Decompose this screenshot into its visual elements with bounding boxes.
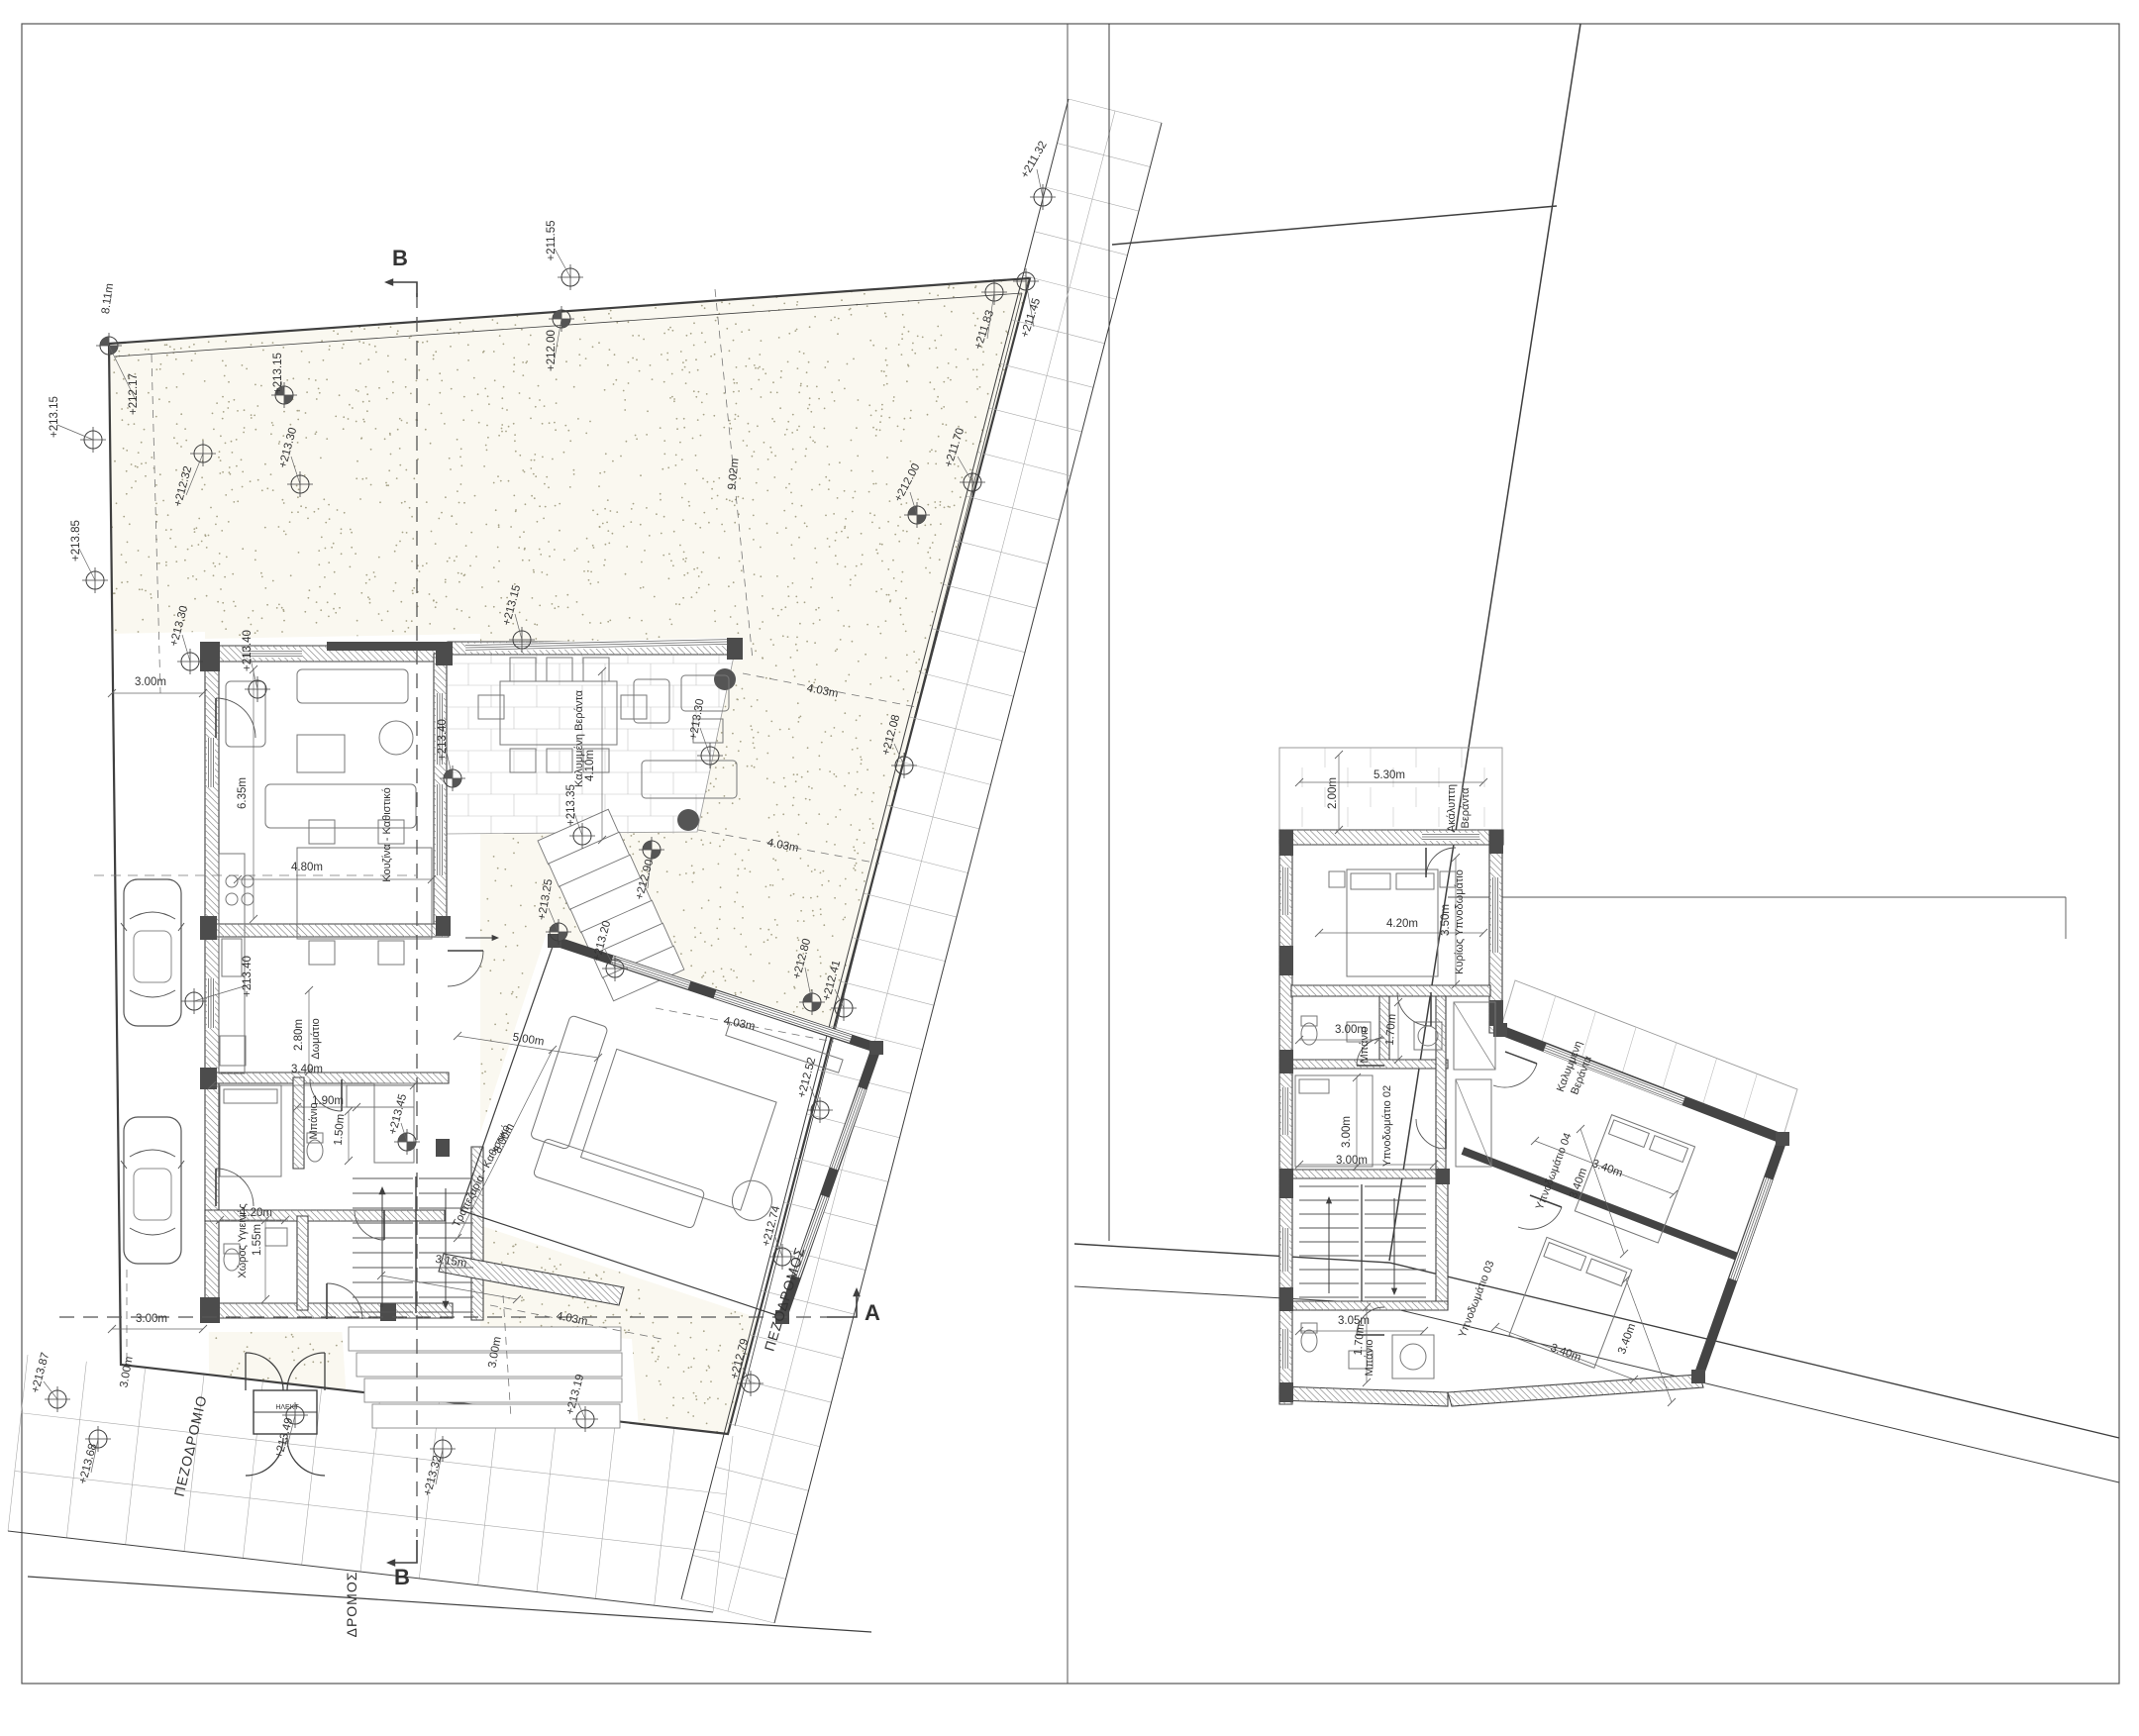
stipple-dot <box>844 388 846 390</box>
stipple-dot <box>537 1246 539 1248</box>
stipple-dot <box>788 971 790 973</box>
stipple-dot <box>790 492 792 494</box>
plan-line <box>8 1531 713 1612</box>
stipple-dot <box>683 427 685 429</box>
stipple-dot <box>520 905 522 907</box>
stipple-dot <box>639 370 641 372</box>
stipple-dot <box>169 346 171 348</box>
stipple-dot <box>697 419 699 421</box>
stipple-dot <box>864 293 866 295</box>
stipple-dot <box>695 523 697 525</box>
stipple-dot <box>958 465 960 467</box>
stipple-dot <box>359 498 361 500</box>
stipple-dot <box>206 547 208 549</box>
stipple-dot <box>716 928 718 930</box>
stipple-dot <box>510 526 512 528</box>
stipple-dot <box>506 409 508 411</box>
stipple-dot <box>798 537 800 539</box>
stipple-dot <box>852 511 854 513</box>
stipple-dot <box>544 483 546 485</box>
stipple-dot <box>222 621 224 623</box>
stipple-dot <box>499 612 501 614</box>
stipple-dot <box>225 443 227 445</box>
stipple-dot <box>244 427 246 429</box>
wall <box>1279 1386 1448 1406</box>
stipple-dot <box>775 937 777 939</box>
stipple-dot <box>819 956 821 958</box>
stipple-dot <box>501 424 503 426</box>
stipple-dot <box>607 364 609 366</box>
room-label: Υπνοδωμάτιο 02 <box>1381 1085 1393 1167</box>
stipple-dot <box>583 317 585 319</box>
stipple-dot <box>795 516 797 518</box>
stipple-dot <box>687 1411 689 1413</box>
stipple-dot <box>643 339 645 341</box>
stipple-dot <box>902 571 904 573</box>
furniture <box>124 879 181 1026</box>
stipple-dot <box>772 608 774 610</box>
stipple-dot <box>723 766 725 768</box>
stipple-dot <box>559 503 560 505</box>
stipple-dot <box>397 330 399 332</box>
stipple-dot <box>318 563 320 565</box>
stipple-dot <box>658 1356 660 1358</box>
stipple-dot <box>344 512 346 514</box>
stipple-dot <box>413 477 415 479</box>
stipple-dot <box>925 637 927 639</box>
arrow-head <box>384 278 393 286</box>
stipple-dot <box>851 469 853 471</box>
stipple-dot <box>721 732 723 734</box>
stipple-dot <box>460 483 462 485</box>
stipple-dot <box>759 366 761 368</box>
stipple-dot <box>522 560 524 562</box>
stipple-dot <box>405 469 407 471</box>
stipple-dot <box>848 674 850 676</box>
room-label: Υπνοδωμάτιο 03 <box>1457 1259 1497 1339</box>
stipple-dot <box>660 493 662 495</box>
stipple-dot <box>508 480 510 482</box>
stipple-dot <box>718 1350 720 1352</box>
stipple-dot <box>544 405 546 407</box>
stipple-dot <box>855 869 857 871</box>
stipple-dot <box>735 992 737 994</box>
stipple-dot <box>607 530 609 532</box>
stipple-dot <box>805 448 807 450</box>
stipple-dot <box>741 1315 743 1317</box>
stipple-dot <box>620 456 622 458</box>
stipple-dot <box>162 500 164 502</box>
stipple-dot <box>281 631 283 633</box>
stipple-dot <box>454 628 456 630</box>
stipple-dot <box>675 464 677 466</box>
stipple-dot <box>927 414 929 416</box>
stipple-dot <box>723 427 725 429</box>
stipple-dot <box>422 565 424 567</box>
stipple-dot <box>966 440 968 442</box>
stipple-dot <box>139 588 141 590</box>
stipple-dot <box>605 1320 607 1322</box>
stipple-dot <box>219 563 221 565</box>
stipple-dot <box>224 375 226 377</box>
stipple-dot <box>325 522 327 524</box>
stipple-dot <box>297 442 299 444</box>
stipple-dot <box>979 386 981 388</box>
stipple-dot <box>158 562 160 564</box>
stipple-dot <box>892 560 894 562</box>
stipple-dot <box>956 366 958 368</box>
stipple-dot <box>956 546 958 548</box>
stipple-dot <box>529 560 531 562</box>
stipple-dot <box>676 428 678 430</box>
stipple-dot <box>946 424 948 426</box>
stipple-dot <box>932 611 934 613</box>
stipple-dot <box>328 562 330 563</box>
stipple-dot <box>685 841 687 843</box>
stipple-dot <box>725 979 727 981</box>
stipple-dot <box>328 504 330 506</box>
stipple-dot <box>145 462 147 464</box>
stipple-dot <box>721 301 723 303</box>
stipple-dot <box>641 562 643 563</box>
stipple-dot <box>685 558 687 560</box>
stipple-dot <box>278 441 280 443</box>
stipple-dot <box>251 624 253 626</box>
stipple-dot <box>518 986 520 988</box>
stipple-dot <box>528 344 530 346</box>
stipple-dot <box>858 661 860 663</box>
stipple-dot <box>498 561 500 562</box>
stipple-dot <box>427 341 429 343</box>
door-swing <box>1493 1064 1537 1087</box>
stipple-dot <box>233 501 235 503</box>
stipple-dot <box>796 637 798 639</box>
stipple-dot <box>695 358 697 360</box>
stipple-dot <box>828 880 830 882</box>
stipple-dot <box>603 1272 605 1274</box>
stipple-dot <box>292 1351 294 1353</box>
stipple-dot <box>145 475 147 477</box>
stipple-dot <box>333 330 335 332</box>
stipple-dot <box>762 595 764 597</box>
stipple-dot <box>337 333 339 335</box>
stipple-dot <box>885 316 887 318</box>
stipple-dot <box>193 528 195 530</box>
stipple-dot <box>839 461 841 463</box>
stipple-dot <box>887 568 889 570</box>
stipple-dot <box>553 1271 555 1273</box>
stipple-dot <box>356 389 357 391</box>
stipple-dot <box>735 605 737 607</box>
stipple-dot <box>365 582 367 584</box>
stipple-dot <box>778 337 780 339</box>
stipple-dot <box>683 1371 685 1373</box>
stipple-dot <box>518 547 520 549</box>
stipple-dot <box>610 317 612 319</box>
stipple-dot <box>502 1049 504 1051</box>
stipple-dot <box>738 390 740 392</box>
stipple-dot <box>955 349 957 351</box>
stipple-dot <box>854 865 856 867</box>
stipple-dot <box>777 869 779 871</box>
stipple-dot <box>485 524 487 526</box>
stipple-dot <box>901 354 903 356</box>
stipple-dot <box>830 1009 832 1011</box>
stipple-dot <box>490 632 492 634</box>
stipple-dot <box>597 581 599 583</box>
stipple-dot <box>503 960 505 962</box>
stipple-dot <box>584 319 586 321</box>
stipple-dot <box>679 545 681 547</box>
stipple-dot <box>780 609 782 611</box>
stipple-dot <box>688 371 690 373</box>
stipple-dot <box>720 886 722 888</box>
stipple-dot <box>844 712 846 714</box>
stipple-dot <box>219 553 221 555</box>
stipple-dot <box>390 326 392 328</box>
stipple-dot <box>784 434 786 436</box>
stipple-dot <box>328 1361 330 1363</box>
stipple-dot <box>516 996 518 998</box>
stipple-dot <box>907 700 909 702</box>
stipple-dot <box>872 823 874 825</box>
stipple-dot <box>924 525 926 527</box>
stipple-dot <box>451 515 453 517</box>
plan-line <box>1389 24 1580 1261</box>
stipple-dot <box>822 1011 824 1013</box>
stipple-dot <box>123 448 125 450</box>
stipple-dot <box>849 626 851 628</box>
stipple-dot <box>813 623 815 625</box>
stipple-dot <box>875 591 877 593</box>
stipple-dot <box>901 338 903 340</box>
stipple-dot <box>408 627 410 629</box>
stipple-dot <box>662 468 663 470</box>
stipple-dot <box>543 518 545 520</box>
stipple-dot <box>319 586 321 588</box>
stipple-dot <box>884 312 886 314</box>
stipple-dot <box>216 516 218 518</box>
stipple-dot <box>791 468 793 470</box>
dimension-label: 3.40m <box>1616 1322 1638 1356</box>
stipple-dot <box>837 563 839 565</box>
stipple-dot <box>363 328 365 330</box>
furniture <box>1575 1115 1694 1243</box>
stipple-dot <box>367 358 369 360</box>
stipple-dot <box>909 417 911 419</box>
stipple-dot <box>672 1404 674 1406</box>
stipple-dot <box>607 499 609 501</box>
stipple-dot <box>201 476 203 478</box>
stipple-dot <box>318 388 320 390</box>
stipple-dot <box>454 560 456 562</box>
stipple-dot <box>711 498 713 500</box>
stipple-dot <box>614 354 616 356</box>
stipple-dot <box>545 1270 547 1272</box>
stipple-dot <box>719 846 721 848</box>
stipple-dot <box>818 607 820 609</box>
stipple-dot <box>770 452 772 454</box>
stipple-dot <box>554 422 556 424</box>
stipple-dot <box>738 868 740 870</box>
stipple-dot <box>606 522 608 524</box>
elevation-label: +211.55 <box>546 220 558 260</box>
stipple-dot <box>244 409 246 411</box>
stipple-dot <box>401 502 403 504</box>
stipple-dot <box>653 1335 655 1337</box>
stipple-dot <box>669 397 671 399</box>
furniture <box>1650 1136 1688 1163</box>
stipple-dot <box>316 601 318 603</box>
stipple-dot <box>560 897 561 899</box>
stipple-dot <box>715 778 717 780</box>
stipple-dot <box>563 452 565 454</box>
stipple-dot <box>542 1303 544 1305</box>
furniture <box>1396 873 1434 889</box>
stipple-dot <box>836 649 838 651</box>
stipple-dot <box>793 773 795 775</box>
stipple-dot <box>405 358 407 360</box>
stipple-dot <box>291 512 293 514</box>
plan-line <box>1037 169 1043 197</box>
stipple-dot <box>813 426 815 428</box>
stipple-dot <box>547 574 549 576</box>
stipple-dot <box>734 418 736 420</box>
stipple-dot <box>804 522 806 524</box>
stipple-dot <box>242 486 244 488</box>
stipple-dot <box>820 963 822 965</box>
stipple-dot <box>652 1352 654 1354</box>
stipple-dot <box>320 458 322 460</box>
stipple-dot <box>861 563 863 565</box>
stipple-dot <box>950 379 952 381</box>
stipple-dot <box>357 390 359 392</box>
car <box>121 879 184 1026</box>
stipple-dot <box>807 408 809 410</box>
stipple-dot <box>724 795 726 797</box>
stipple-dot <box>706 1349 708 1351</box>
stipple-dot <box>757 699 759 701</box>
stipple-dot <box>845 518 847 520</box>
stipple-dot <box>738 632 740 634</box>
stipple-dot <box>519 536 521 538</box>
arrow-head <box>853 1287 861 1296</box>
stipple-dot <box>533 571 535 573</box>
stipple-dot <box>513 363 515 365</box>
stipple-dot <box>962 476 964 478</box>
stipple-dot <box>640 587 642 589</box>
room-label: ΗΛΕΚΤ <box>275 1404 299 1411</box>
car <box>121 1117 184 1264</box>
stipple-dot <box>255 550 256 552</box>
stipple-dot <box>121 581 123 583</box>
stipple-dot <box>604 471 606 473</box>
stipple-dot <box>880 723 882 725</box>
stipple-dot <box>521 1300 523 1302</box>
stipple-dot <box>806 371 808 373</box>
stipple-dot <box>519 392 521 394</box>
plan-line <box>1735 1179 1771 1280</box>
stipple-dot <box>503 386 505 388</box>
stipple-dot <box>261 617 263 619</box>
stipple-dot <box>759 628 761 630</box>
stipple-dot <box>165 562 167 563</box>
stipple-dot <box>719 802 721 804</box>
stipple-dot <box>260 572 262 574</box>
stipple-dot <box>468 617 470 619</box>
stipple-dot <box>667 329 669 331</box>
stipple-dot <box>156 514 158 516</box>
stipple-dot <box>138 452 140 454</box>
stipple-dot <box>232 452 234 454</box>
stipple-dot <box>114 460 116 462</box>
stipple-dot <box>899 516 901 518</box>
stipple-dot <box>941 582 943 584</box>
stipple-dot <box>328 616 330 618</box>
stipple-dot <box>138 550 140 552</box>
stipple-dot <box>549 556 551 558</box>
stipple-dot <box>681 459 683 460</box>
stipple-dot <box>680 953 682 955</box>
stipple-dot <box>640 524 642 526</box>
stipple-dot <box>941 335 943 337</box>
stipple-dot <box>393 590 395 592</box>
stipple-dot <box>714 610 716 612</box>
stipple-dot <box>734 504 736 506</box>
stipple-dot <box>573 473 575 475</box>
stipple-dot <box>937 396 939 398</box>
stipple-dot <box>592 545 594 547</box>
stipple-dot <box>334 571 336 573</box>
stipple-dot <box>801 505 803 507</box>
stipple-dot <box>669 619 671 621</box>
stipple-dot <box>539 505 541 507</box>
stipple-dot <box>679 874 681 876</box>
stipple-dot <box>554 607 556 609</box>
stipple-dot <box>643 586 645 588</box>
stipple-dot <box>696 592 698 594</box>
stipple-dot <box>513 853 515 855</box>
stipple-dot <box>559 530 560 532</box>
stipple-dot <box>228 401 230 403</box>
stipple-dot <box>829 770 831 772</box>
stipple-dot <box>384 438 386 440</box>
stipple-dot <box>262 350 264 352</box>
stipple-dot <box>868 491 870 493</box>
stipple-dot <box>588 1277 590 1279</box>
stipple-dot <box>739 561 741 562</box>
stipple-dot <box>795 780 797 782</box>
stipple-dot <box>931 449 933 451</box>
stipple-dot <box>937 326 939 328</box>
stipple-dot <box>574 550 576 552</box>
stipple-dot <box>198 544 200 546</box>
stipple-dot <box>399 541 401 543</box>
stipple-dot <box>695 455 697 457</box>
stipple-dot <box>797 937 799 939</box>
stipple-dot <box>780 370 782 372</box>
stipple-dot <box>690 333 692 335</box>
stipple-dot <box>436 602 438 604</box>
stipple-dot <box>742 497 744 499</box>
stipple-dot <box>192 575 194 577</box>
stipple-dot <box>686 335 688 337</box>
stipple-dot <box>504 924 506 926</box>
stipple-dot <box>598 342 600 344</box>
floor-plan-drawing: +212.17+212.32+211.55+212.00+211.32+211.… <box>0 0 2139 1736</box>
stipple-dot <box>593 547 595 549</box>
stipple-dot <box>733 581 735 583</box>
